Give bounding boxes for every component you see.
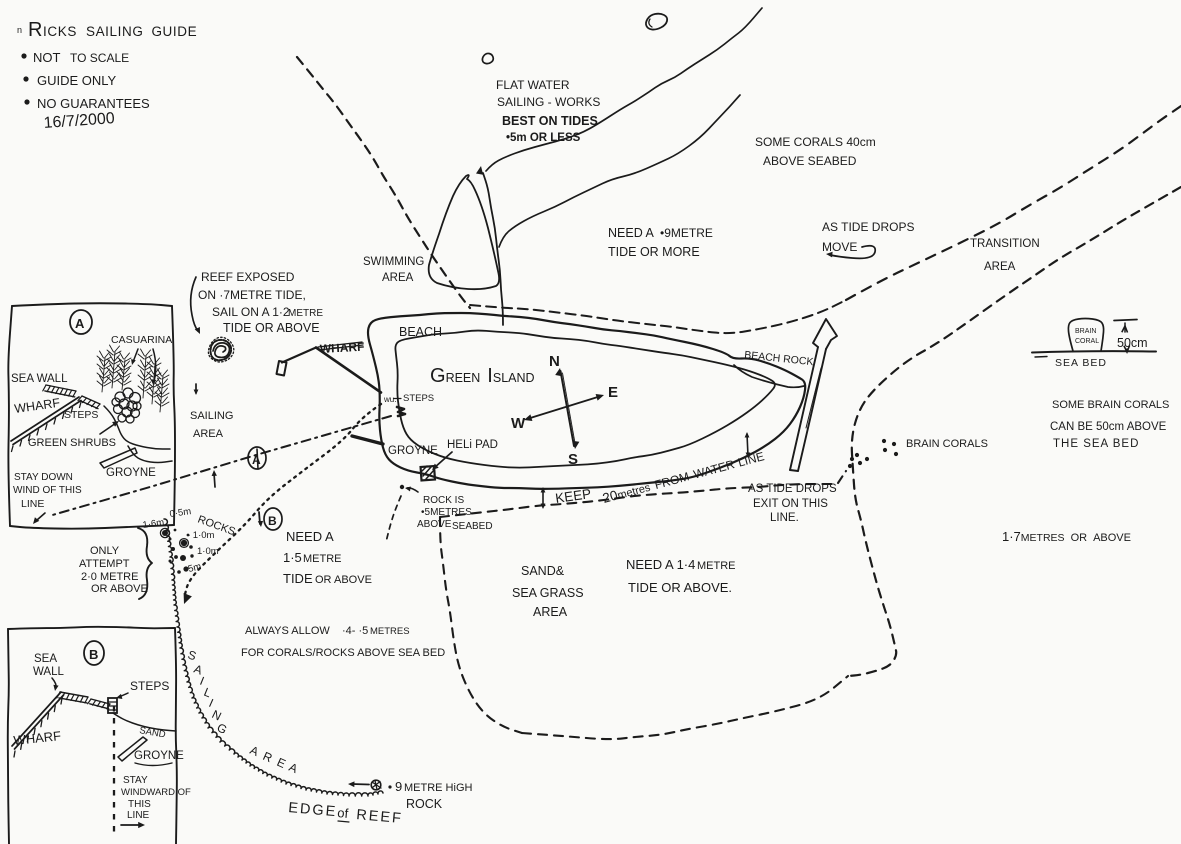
svg-text:STAY: STAY (123, 775, 148, 786)
svg-text:BRAIN: BRAIN (1075, 328, 1096, 335)
svg-text:WALL: WALL (33, 666, 64, 678)
svg-text:SOME CORALS 40cm: SOME CORALS 40cm (755, 135, 876, 149)
svg-text:FLAT WATER: FLAT WATER (496, 78, 570, 92)
svg-text:ROCK IS: ROCK IS (423, 495, 464, 506)
svg-text:A: A (252, 453, 261, 467)
svg-text:E: E (608, 384, 618, 401)
svg-text:SWIMMING: SWIMMING (363, 256, 424, 268)
svg-text:METRE HiGH: METRE HiGH (404, 782, 473, 794)
svg-text:AREA: AREA (193, 428, 224, 440)
svg-text:ABOVE: ABOVE (334, 574, 372, 586)
svg-text:CASUARINA: CASUARINA (111, 334, 172, 346)
svg-text:ABOVE: ABOVE (417, 519, 452, 530)
svg-text:50cm: 50cm (1117, 336, 1148, 350)
svg-text:GROYNE: GROYNE (134, 750, 184, 762)
svg-text:STEPS: STEPS (64, 409, 98, 421)
svg-text:METRE: METRE (288, 308, 323, 319)
svg-text:1·5: 1·5 (283, 550, 302, 565)
svg-text:n: n (17, 25, 22, 35)
svg-text:SEA BED: SEA BED (1055, 357, 1107, 369)
svg-text:TRANSITION: TRANSITION (970, 238, 1040, 250)
svg-text:W: W (511, 415, 526, 432)
svg-text:wu.: wu. (383, 395, 396, 404)
svg-text:GROYNE: GROYNE (388, 445, 438, 457)
svg-text:NOT: NOT (33, 50, 61, 65)
svg-text:- 1·0m: - 1·0m (187, 530, 215, 541)
svg-text:SAND&: SAND& (521, 564, 565, 578)
svg-text:STEPS: STEPS (403, 393, 434, 404)
svg-text:GREEN SHRUBS: GREEN SHRUBS (28, 437, 116, 449)
svg-text:BEACH: BEACH (399, 325, 442, 339)
svg-text:SEA WALL: SEA WALL (11, 373, 68, 385)
svg-text:FOR CORALS/ROCKS ABOVE SEA BED: FOR CORALS/ROCKS ABOVE SEA BED (241, 647, 445, 659)
svg-text:A: A (75, 316, 85, 331)
svg-text:SEA: SEA (34, 653, 57, 665)
svg-text:METRES: METRES (370, 626, 410, 637)
svg-text:STEPS: STEPS (130, 679, 169, 693)
svg-text:B: B (268, 514, 277, 528)
svg-text:SAILING: SAILING (190, 410, 233, 422)
svg-text:TIDE OR ABOVE.: TIDE OR ABOVE. (628, 580, 732, 595)
svg-text:TIDE OR MORE: TIDE OR MORE (608, 245, 700, 259)
svg-text:GROYNE: GROYNE (106, 467, 156, 479)
svg-text:AREA: AREA (382, 272, 414, 284)
svg-text:1·0m: 1·0m (197, 546, 219, 557)
svg-text:WINDWARD OF: WINDWARD OF (121, 787, 191, 798)
svg-text:TO SCALE: TO SCALE (70, 51, 129, 65)
svg-text:AS TIDE DROPS: AS TIDE DROPS (822, 220, 914, 234)
svg-text:NO GUARANTEES: NO GUARANTEES (37, 96, 150, 111)
svg-text:SAIL ON A 1·2: SAIL ON A 1·2 (212, 305, 290, 319)
svg-text:BRAIN CORALS: BRAIN CORALS (906, 438, 988, 450)
svg-text:CAN BE 50cm ABOVE: CAN BE 50cm ABOVE (1050, 421, 1167, 433)
svg-text:OR ABOVE: OR ABOVE (91, 583, 148, 595)
svg-text:METRE: METRE (697, 560, 736, 572)
svg-text:NEED A 1·4: NEED A 1·4 (626, 557, 695, 572)
svg-text:2·0 METRE: 2·0 METRE (81, 571, 138, 583)
svg-text:B: B (89, 647, 98, 662)
svg-text:•5m OR LESS: •5m OR LESS (506, 132, 581, 144)
svg-text:LINE.: LINE. (770, 512, 799, 524)
svg-text:TIDE OR ABOVE: TIDE OR ABOVE (223, 321, 320, 335)
svg-text:LINE: LINE (21, 498, 44, 510)
svg-text:NEED A: NEED A (286, 529, 334, 544)
svg-text:STAY DOWN: STAY DOWN (14, 472, 73, 483)
svg-text:WIND OF THIS: WIND OF THIS (13, 485, 82, 496)
svg-text:AREA: AREA (984, 261, 1016, 273)
svg-text:ROCK: ROCK (406, 797, 443, 811)
svg-text:BEST ON TIDES: BEST ON TIDES (502, 114, 598, 128)
svg-text:SOME BRAIN CORALS: SOME BRAIN CORALS (1052, 399, 1169, 411)
svg-text:S: S (568, 451, 578, 468)
svg-text:GUIDE ONLY: GUIDE ONLY (37, 73, 117, 88)
svg-text:AREA: AREA (533, 605, 568, 619)
svg-text:of: of (337, 805, 349, 821)
svg-text:CORAL: CORAL (1075, 338, 1099, 345)
svg-text:ONLY: ONLY (90, 545, 120, 557)
svg-text:AS TIDE DROPS: AS TIDE DROPS (748, 483, 837, 495)
svg-text:REEF EXPOSED: REEF EXPOSED (201, 270, 295, 284)
svg-text:ABOVE SEABED: ABOVE SEABED (763, 154, 857, 168)
svg-text:ON ·7METRE TIDE,: ON ·7METRE TIDE, (198, 288, 306, 302)
svg-text:·4- ·5: ·4- ·5 (342, 625, 368, 637)
svg-text:SAILING - WORKS: SAILING - WORKS (497, 95, 600, 109)
svg-text:MOVE: MOVE (822, 240, 857, 254)
svg-text:THE SEA BED: THE SEA BED (1053, 438, 1139, 450)
svg-text:EXIT ON THIS: EXIT ON THIS (753, 498, 828, 510)
svg-text:ALWAYS ALLOW: ALWAYS ALLOW (245, 625, 330, 637)
svg-text:OR: OR (315, 574, 332, 586)
svg-text:HELi PAD: HELi PAD (447, 439, 498, 451)
svg-text:ATTEMPT: ATTEMPT (79, 558, 130, 570)
svg-text:SEA GRASS: SEA GRASS (512, 586, 584, 600)
svg-text:SEABED: SEABED (452, 521, 493, 532)
svg-text:N: N (549, 353, 560, 370)
svg-text:•9METRE: •9METRE (660, 226, 713, 240)
svg-text:TIDE: TIDE (283, 571, 313, 586)
svg-text:9: 9 (395, 779, 402, 794)
svg-text:THIS: THIS (128, 799, 151, 810)
svg-text:METRE: METRE (303, 553, 342, 565)
svg-text:LINE: LINE (127, 810, 150, 821)
svg-text:NEED A: NEED A (608, 226, 655, 240)
